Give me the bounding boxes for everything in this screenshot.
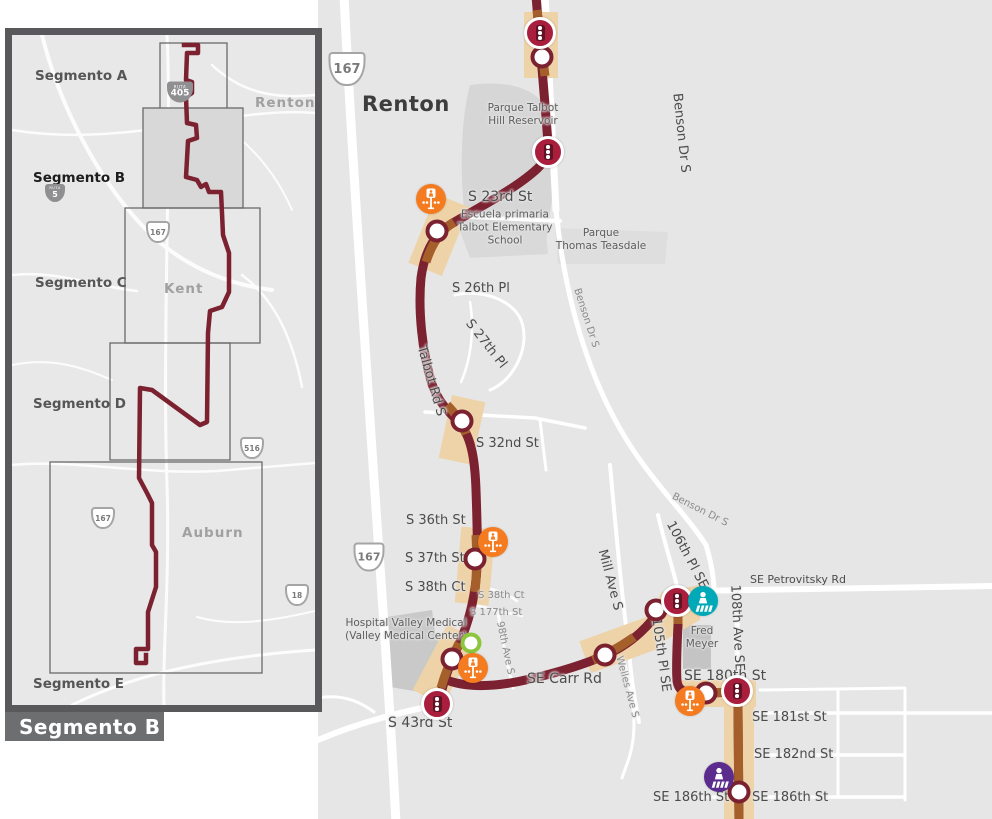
place-label-teasdale: Parque Thomas Teasdale [556,227,646,253]
shield-number: 18 [292,591,302,600]
inset-city-kent: Kent [164,281,203,297]
crossing-signal-glyph [478,527,508,557]
traffic-signal-icon [524,17,556,49]
street-label-s32: S 32nd St [476,436,539,451]
inset-overview-map: Segmento A Segmento B Segmento C Segment… [5,28,322,712]
inset-city-auburn: Auburn [182,525,244,541]
station-marker [594,644,617,667]
street-label-s23: S 23rd St [468,189,532,205]
segment-e-label: Segmento E [33,676,124,692]
pedestrian-glyph [704,762,734,792]
inset-graphics [12,35,315,705]
street-label-se186-left: SE 186th St [653,790,729,805]
street-label-s37: S 37th St [405,551,465,566]
station-marker [531,46,554,69]
shield-number: 167 [95,514,111,523]
place-label-talbot-reservoir: Parque Talbot Hill Reservoir [488,102,559,128]
segment-title: Segmento B [5,712,164,741]
shield-number: 516 [244,444,260,453]
pedestrian-crossing-icon-purple [704,762,734,792]
crossing-signal-icon-orange [675,686,705,716]
map-background [318,0,992,819]
transit-map-page: 167 167 [0,0,992,819]
shield-number: 167 [150,228,166,237]
segment-a-label: Segmento A [35,68,127,84]
street-label-se186-right: SE 186th St [752,790,828,805]
street-label-s38ct: S 38th Ct [405,580,466,595]
station-marker [426,220,449,243]
pedestrian-glyph [688,586,718,616]
crossing-signal-glyph [416,184,446,214]
inset-city-renton: Renton [255,95,316,111]
city-label-renton: Renton [362,92,450,116]
place-label-hospital: Hospital Valley Medical (Valley Medical … [345,617,467,643]
green-station-marker [461,633,482,654]
traffic-signal-icon [421,688,453,720]
route-167-shield-number: 167 [358,551,381,564]
crossing-signal-glyph [675,686,705,716]
street-label-s36: S 36th St [406,513,466,528]
shield-number: 405 [171,90,190,99]
street-label-se181: SE 181st St [752,710,827,725]
street-label-s177: S 177th St [470,607,522,618]
crossing-signal-icon-orange [458,653,488,683]
route-167-shield-number: 167 [333,62,360,77]
street-label-petrovitsky: SE Petrovitsky Rd [750,573,846,586]
segment-title-text: Segmento B [19,715,160,739]
pedestrian-crossing-icon-teal [688,586,718,616]
traffic-signal-icon [721,675,753,707]
street-label-se182: SE 182nd St [754,747,833,762]
crossing-signal-icon-orange [416,184,446,214]
street-label-s38ct-small: S 38th Ct [478,590,525,601]
segment-d-label: Segmento D [33,396,126,412]
station-marker [451,410,474,433]
shield-number: 5 [52,191,58,199]
street-label-carr: SE Carr Rd [527,671,602,687]
place-label-fred-meyer: Fred Meyer [686,625,719,651]
segment-c-label: Segmento C [35,275,127,291]
traffic-signal-icon [532,136,564,168]
crossing-signal-icon-orange [478,527,508,557]
street-label-s26: S 26th Pl [452,281,510,296]
crossing-signal-glyph [458,653,488,683]
place-label-school: Escuela primaria Talbot Elementary Schoo… [457,208,552,247]
